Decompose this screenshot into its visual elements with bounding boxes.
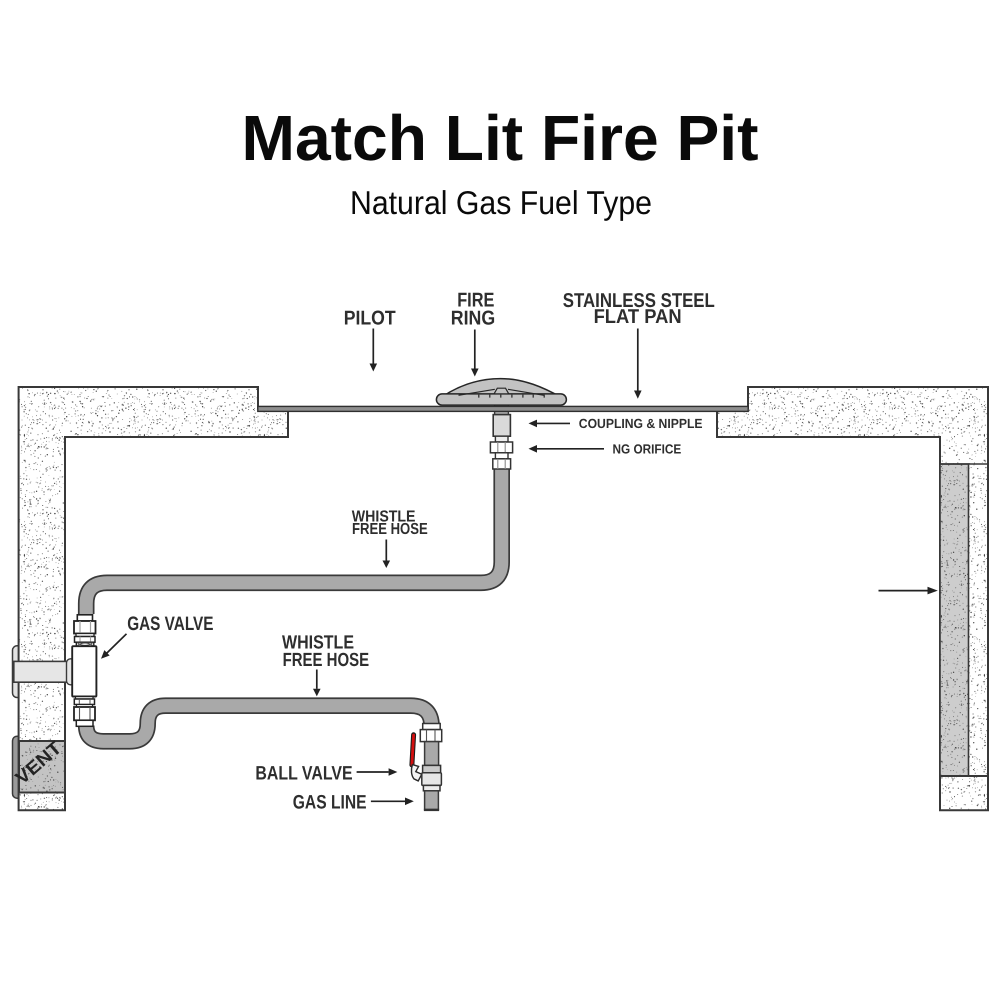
svg-text:NG ORIFICE: NG ORIFICE <box>613 442 682 457</box>
svg-text:RING: RING <box>451 308 495 330</box>
svg-text:GAS LINE: GAS LINE <box>293 791 367 813</box>
svg-text:FLAT PAN: FLAT PAN <box>594 306 682 328</box>
svg-text:FREE HOSE: FREE HOSE <box>352 521 428 538</box>
svg-text:GAS VALVE: GAS VALVE <box>127 613 213 635</box>
svg-text:FREE HOSE: FREE HOSE <box>283 650 370 671</box>
svg-text:PILOT: PILOT <box>344 307 396 329</box>
svg-text:COUPLING & NIPPLE: COUPLING & NIPPLE <box>579 416 703 431</box>
svg-text:Natural Gas Fuel Type: Natural Gas Fuel Type <box>350 184 652 221</box>
svg-text:Match Lit Fire Pit: Match Lit Fire Pit <box>242 102 759 174</box>
svg-text:BALL VALVE: BALL VALVE <box>255 763 352 785</box>
